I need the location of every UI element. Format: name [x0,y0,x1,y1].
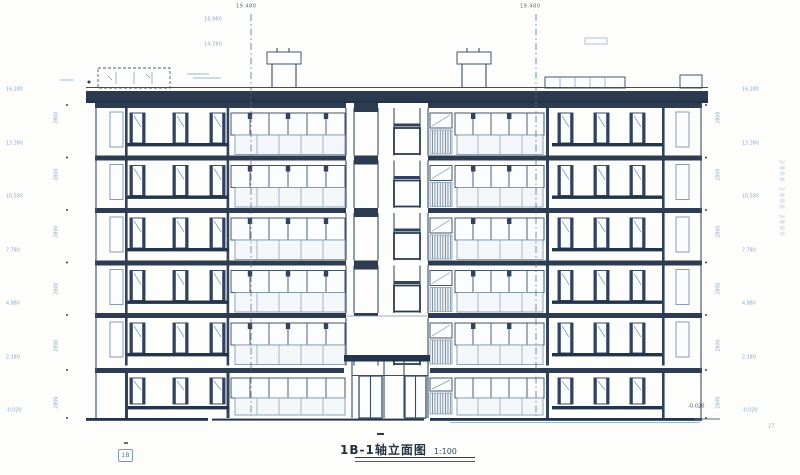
left-elevation-column: 16.18013.38010.5807.7804.9802.180-0.020 [6,86,46,414]
facade-floors [95,103,702,418]
axis-elevation-label-left: 19.480 [236,4,256,9]
dim-value: 2800 [53,282,59,294]
title-underline [355,457,475,462]
dim-value: 2.180 [742,354,777,360]
dim-value: -0.020 [742,408,777,414]
dim-value: 2800 [715,225,721,237]
ground-line [86,418,702,423]
dim-value: 2800 [715,282,721,294]
ground-scribble [694,418,720,420]
drawing-title: 1B-1轴立面图 [340,441,427,458]
axis-bubble: 1B [118,449,133,462]
elevation-drawing-canvas: 19.480 19.480 16.980 14.780 16.18013.380… [0,0,800,475]
left-heights-column: 280028002800280028002800 [50,110,62,410]
dim-value: 2800 [53,112,59,124]
building-elevation-svg [0,0,800,475]
dim-value: 2800 [53,168,59,180]
drawing-scale: 1:100 [434,447,457,456]
right-heights-column: 280028002800280028002800 [712,110,724,410]
drawing-title-block: 1B-1轴立面图 1:100 [340,441,457,458]
dim-value: 2800 [53,396,59,408]
dim-value: 7.780 [742,247,777,253]
roof-note-bottom: 14.780 [204,42,222,47]
dim-value: 10.580 [742,194,777,200]
dim-value: 2800 [715,396,721,408]
dim-value: 2800 [53,339,59,351]
rooftop-structures [60,38,702,88]
dim-value: 2800 [53,225,59,237]
dim-value: 4.980 [6,301,38,307]
roof-note-top: 16.980 [204,17,222,22]
dim-value: 2.180 [6,354,38,360]
dim-value: 4.980 [742,301,777,307]
axis-elevation-label-right: 19.480 [520,4,540,9]
dim-value: -0.020 [6,408,38,414]
right-margin-note: 2800 2800 2800 [778,160,784,238]
dim-value: 2800 [715,112,721,124]
dim-value: 7.780 [6,247,38,253]
title-tick-mark [377,433,384,435]
dim-value: 10.580 [6,194,38,200]
right-elevation-column: 16.18013.38010.5807.7804.9802.180-0.020 [742,86,786,414]
dim-value: 2800 [715,168,721,180]
dim-value: 16.180 [6,87,38,93]
base-elevation-note: -0.020 [688,404,704,409]
roof-parapet [86,88,708,104]
dim-value: 2800 [715,339,721,351]
corner-note: 27 [768,424,774,429]
axis-bubble-tick [124,442,128,444]
entrance [344,316,430,418]
dim-value: 13.380 [742,140,777,146]
dim-value: 16.180 [742,87,777,93]
dim-value: 13.380 [6,140,38,146]
